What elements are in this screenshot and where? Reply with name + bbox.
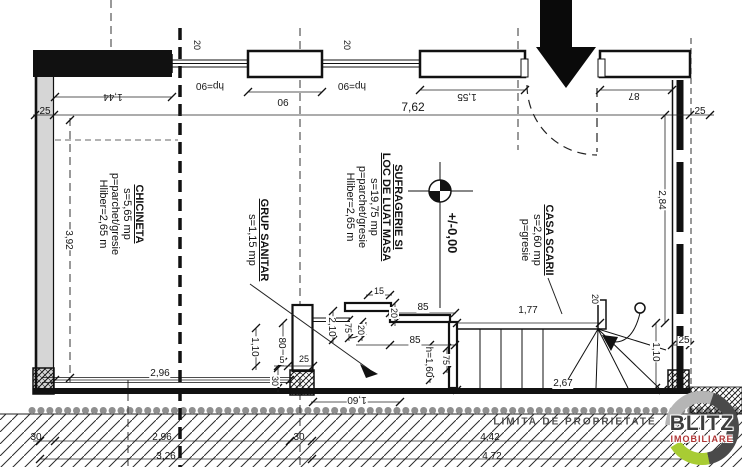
dim-90: 90 [277, 96, 288, 106]
logo-text-blitz: BLITZ [660, 412, 742, 436]
dim-2-67: 2,67 [552, 379, 573, 389]
dim-75-a: 75 [343, 322, 353, 334]
dim-20-bath-a: 20 [356, 324, 366, 336]
stairs-direction-arrow [602, 335, 618, 351]
dim-30-band-left: 30 [30, 433, 41, 443]
dim-85-a: 85 [416, 303, 429, 313]
level-marker-label: +/-0,00 [447, 213, 457, 254]
dim-5: 5 [278, 355, 285, 365]
dim-2-10: 2,10 [326, 316, 336, 337]
dim-30-pillar: 30 [270, 375, 280, 387]
room-label-grup-sanitar: GRUP SANITAR s=1,15 mp [246, 199, 270, 282]
property-line-label: LIMITA DE PROPRIETATE [493, 417, 656, 428]
logo-text-imobiliare: IMOBILIARE [660, 434, 742, 444]
dim-1-10-stairs: 1,10 [650, 341, 660, 362]
dim-20-window-2: 20 [342, 40, 352, 50]
dimension-ticks [31, 86, 714, 463]
entrance-door-swing [527, 85, 597, 155]
dim-2-96-interior: 2,96 [149, 369, 170, 379]
room-label-casa-scarii: CASA SCARII s=2,60 mp p=gresie [519, 204, 555, 275]
dim-1-55: 1,55 [457, 91, 476, 101]
dim-30-band-mid: 30 [293, 433, 304, 443]
dim-20-window-1: 20 [192, 40, 202, 50]
dim-3-26: 3,26 [156, 452, 175, 462]
dim-h-1-60: h=1,60 [423, 346, 433, 379]
dim-75-b: 75 [441, 354, 451, 366]
windows [172, 51, 690, 77]
floor-plan-page: CHICINETA s=5,65 mp p=parchet/gresie Hli… [0, 0, 742, 467]
dim-1-44: 1,44 [103, 91, 122, 101]
dim-25-top-right: 25 [694, 107, 705, 117]
dim-2-96-band: 2,96 [152, 433, 171, 443]
dim-1-60: 1,60 [346, 394, 367, 404]
dim-1-10-left: 1,10 [249, 336, 259, 357]
dimension-lines [31, 86, 714, 463]
room-label-chicineta: CHICINETA s=5,65 mp p=parchet/gresie Hli… [97, 173, 145, 255]
dim-20-stairs: 20 [590, 293, 600, 305]
dim-25-top-left: 25 [39, 107, 50, 117]
blitz-imobiliare-logo: BLITZ IMOBILIARE [660, 386, 742, 467]
dim-4-42: 4,42 [480, 433, 499, 443]
dim-3-92: 3,92 [63, 229, 73, 250]
dim-15: 15 [373, 286, 385, 296]
grup-sanitar-leader-arrow [360, 364, 378, 378]
stairs [457, 303, 666, 388]
dim-7-62: 7,62 [401, 102, 424, 112]
dim-4-72: 4,72 [482, 452, 501, 462]
room-label-sufragerie: SUFRAGERIE SI LOC DE LUAT MASA s=19,75 m… [344, 153, 404, 262]
dim-2-84: 2,84 [656, 189, 666, 210]
window-label-hp90-2: hp=90 [338, 80, 366, 90]
level-marker [408, 162, 473, 308]
dim-87: 87 [628, 90, 639, 100]
dim-25-stairs: 25 [677, 336, 690, 346]
window-label-hp90-1: hp=90 [196, 80, 224, 90]
dim-1-77: 1,77 [517, 306, 538, 316]
dim-85-b: 85 [408, 336, 421, 346]
dim-25-pillar: 25 [298, 354, 310, 364]
dim-20-bath-b: 20 [389, 307, 399, 319]
entrance-arrow [536, 0, 596, 88]
dim-80: 80 [276, 336, 286, 349]
